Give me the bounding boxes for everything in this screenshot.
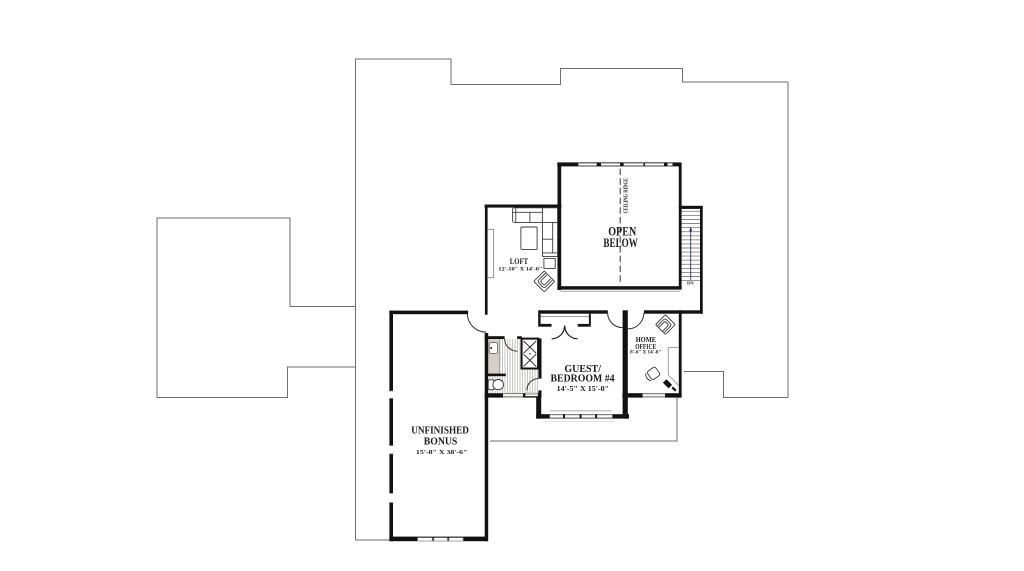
svg-text:DN: DN bbox=[687, 280, 694, 285]
svg-text:8'-6" X 14'-0": 8'-6" X 14'-0" bbox=[630, 351, 661, 356]
svg-text:OFFICE: OFFICE bbox=[635, 342, 656, 351]
svg-text:14'-5" X 15'-0": 14'-5" X 15'-0" bbox=[557, 385, 610, 393]
svg-text:BELOW: BELOW bbox=[603, 235, 638, 250]
svg-text:12'-10" X 14'-0": 12'-10" X 14'-0" bbox=[498, 266, 542, 272]
svg-text:CEILING RIDGE: CEILING RIDGE bbox=[622, 178, 629, 214]
svg-text:BONUS: BONUS bbox=[424, 436, 458, 447]
svg-text:UNFINISHED: UNFINISHED bbox=[411, 426, 469, 437]
svg-text:LOFT: LOFT bbox=[510, 257, 529, 266]
svg-text:15'-8" X 38'-6": 15'-8" X 38'-6" bbox=[416, 449, 468, 456]
svg-text:BEDROOM #4: BEDROOM #4 bbox=[551, 374, 615, 385]
